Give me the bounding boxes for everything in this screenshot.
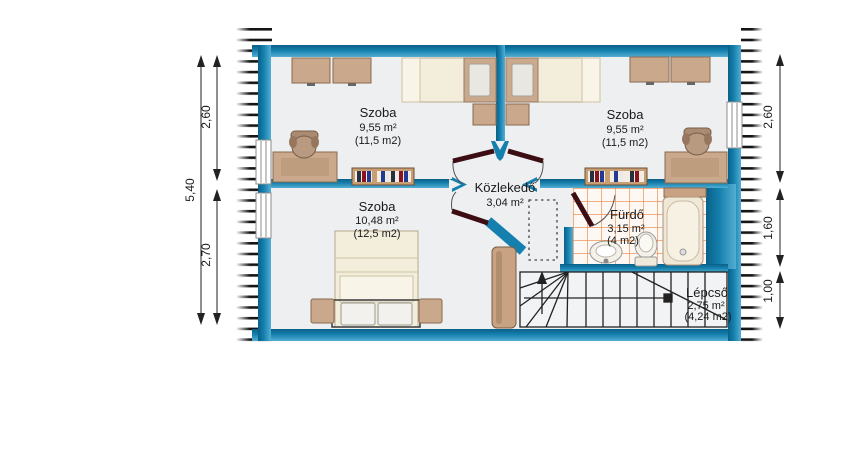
- wall-right-bathroom-thick: [706, 184, 736, 269]
- label-room-bottom-name: Szoba: [359, 199, 397, 214]
- desk: [671, 57, 710, 82]
- label-room-bottom-area: 10,48 m²: [355, 215, 399, 227]
- label-room-top-left-name: Szoba: [360, 105, 398, 120]
- nightstand: [473, 104, 496, 125]
- double-bed: [332, 231, 420, 327]
- floorplan-canvas: Szoba 9,55 m² (11,5 m2) Szoba 9,55 m² (1…: [0, 0, 845, 465]
- dim-left-bottom: 2,70: [199, 243, 213, 267]
- dim-right-bottom: 1,00: [761, 279, 775, 303]
- label-hallway-name: Közlekedő: [475, 180, 536, 195]
- bathtub: [663, 197, 703, 265]
- dim-left-top: 2,60: [199, 105, 213, 129]
- bookshelf: [585, 168, 647, 185]
- label-room-top-left-area: 9,55 m²: [359, 122, 397, 134]
- dim-left-total: 5,40: [183, 178, 197, 202]
- pillow: [512, 64, 533, 96]
- label-bathroom-name: Fürdő: [610, 207, 644, 222]
- dim-right-middle: 1,60: [761, 216, 775, 240]
- desk: [630, 57, 669, 82]
- label-stairs-name: Lépcső: [686, 285, 728, 300]
- desk: [333, 58, 371, 83]
- dim-right-top: 2,60: [761, 105, 775, 129]
- pillow: [469, 64, 490, 96]
- bath-shelf: [664, 188, 706, 197]
- roof-hatch-right: [741, 28, 763, 348]
- single-bed: [506, 58, 600, 102]
- window-left-top: [256, 140, 271, 184]
- single-bed: [402, 58, 496, 102]
- pillow: [341, 303, 375, 325]
- label-room-bottom-area-alt: (12,5 m2): [353, 228, 400, 240]
- nightstand: [419, 299, 442, 323]
- wall-bathroom-left: [564, 227, 573, 269]
- label-bathroom-area-alt: (4 m2): [607, 235, 639, 247]
- label-stairs-area-alt: (4,24 m2): [684, 311, 731, 323]
- label-hallway-area: 3,04 m²: [486, 197, 524, 209]
- wardrobe: [492, 247, 516, 328]
- wall-bottom: [252, 329, 741, 341]
- label-room-top-right-name: Szoba: [607, 107, 645, 122]
- desk: [292, 58, 330, 83]
- nightstand: [506, 104, 529, 125]
- label-room-top-left-area-alt: (11,5 m2): [355, 135, 401, 147]
- nightstand: [311, 299, 334, 323]
- label-room-top-right-area-alt: (11,5 m2): [602, 137, 648, 149]
- window-left-bottom: [256, 193, 271, 238]
- floorplan-svg: Szoba 9,55 m² (11,5 m2) Szoba 9,55 m² (1…: [0, 0, 845, 465]
- bookshelf: [352, 168, 414, 185]
- label-bathroom-area: 3,15 m²: [607, 223, 645, 235]
- wall-center-top: [496, 45, 505, 143]
- pillow: [378, 303, 412, 325]
- window-right: [727, 102, 742, 148]
- label-room-top-right-area: 9,55 m²: [606, 124, 644, 136]
